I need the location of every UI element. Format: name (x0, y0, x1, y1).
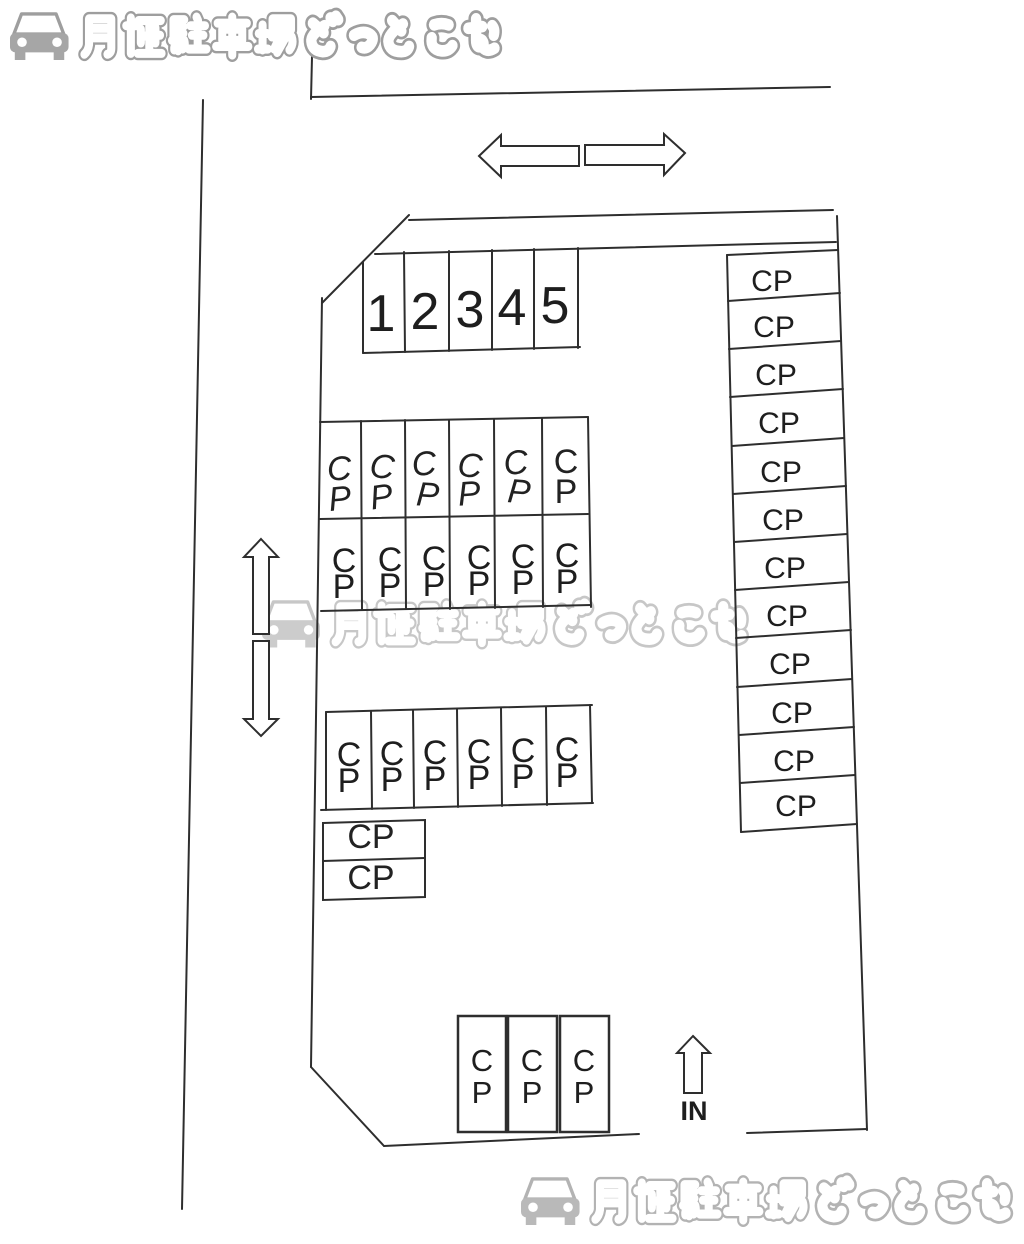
svg-text:P: P (512, 758, 535, 796)
svg-text:CP: CP (347, 818, 394, 856)
svg-text:CP: CP (347, 859, 394, 897)
svg-text:5: 5 (541, 277, 570, 335)
svg-text:2: 2 (411, 283, 440, 341)
svg-text:P: P (415, 475, 441, 515)
svg-text:P: P (555, 473, 578, 511)
svg-text:CP: CP (766, 600, 808, 633)
svg-text:P: P (379, 567, 402, 605)
svg-text:CP: CP (775, 790, 817, 823)
svg-text:P: P (327, 479, 354, 519)
svg-text:P: P (338, 762, 361, 800)
svg-text:P: P (574, 1075, 595, 1110)
svg-text:P: P (506, 472, 532, 512)
svg-text:P: P (468, 565, 491, 603)
svg-text:3: 3 (456, 281, 485, 339)
svg-text:P: P (457, 474, 483, 514)
svg-text:C: C (471, 1043, 493, 1078)
svg-text:P: P (333, 568, 356, 606)
svg-text:P: P (423, 566, 446, 604)
svg-text:P: P (512, 564, 535, 602)
svg-text:4: 4 (498, 279, 527, 337)
svg-text:CP: CP (771, 697, 813, 730)
svg-text:IN: IN (681, 1096, 708, 1126)
svg-text:C: C (521, 1043, 543, 1078)
svg-text:CP: CP (751, 265, 793, 298)
svg-text:P: P (381, 761, 404, 799)
svg-text:P: P (556, 757, 579, 795)
svg-text:P: P (556, 563, 579, 601)
svg-text:CP: CP (762, 504, 804, 537)
svg-text:CP: CP (769, 648, 811, 681)
svg-text:CP: CP (755, 359, 797, 392)
svg-text:P: P (522, 1075, 543, 1110)
svg-text:CP: CP (764, 552, 806, 585)
svg-text:P: P (424, 760, 447, 798)
svg-text:CP: CP (773, 745, 815, 778)
svg-text:CP: CP (758, 407, 800, 440)
svg-text:CP: CP (760, 456, 802, 489)
svg-text:1: 1 (367, 285, 396, 343)
svg-text:CP: CP (753, 311, 795, 344)
svg-text:P: P (472, 1075, 493, 1110)
svg-text:P: P (468, 759, 491, 797)
svg-text:C: C (573, 1043, 595, 1078)
